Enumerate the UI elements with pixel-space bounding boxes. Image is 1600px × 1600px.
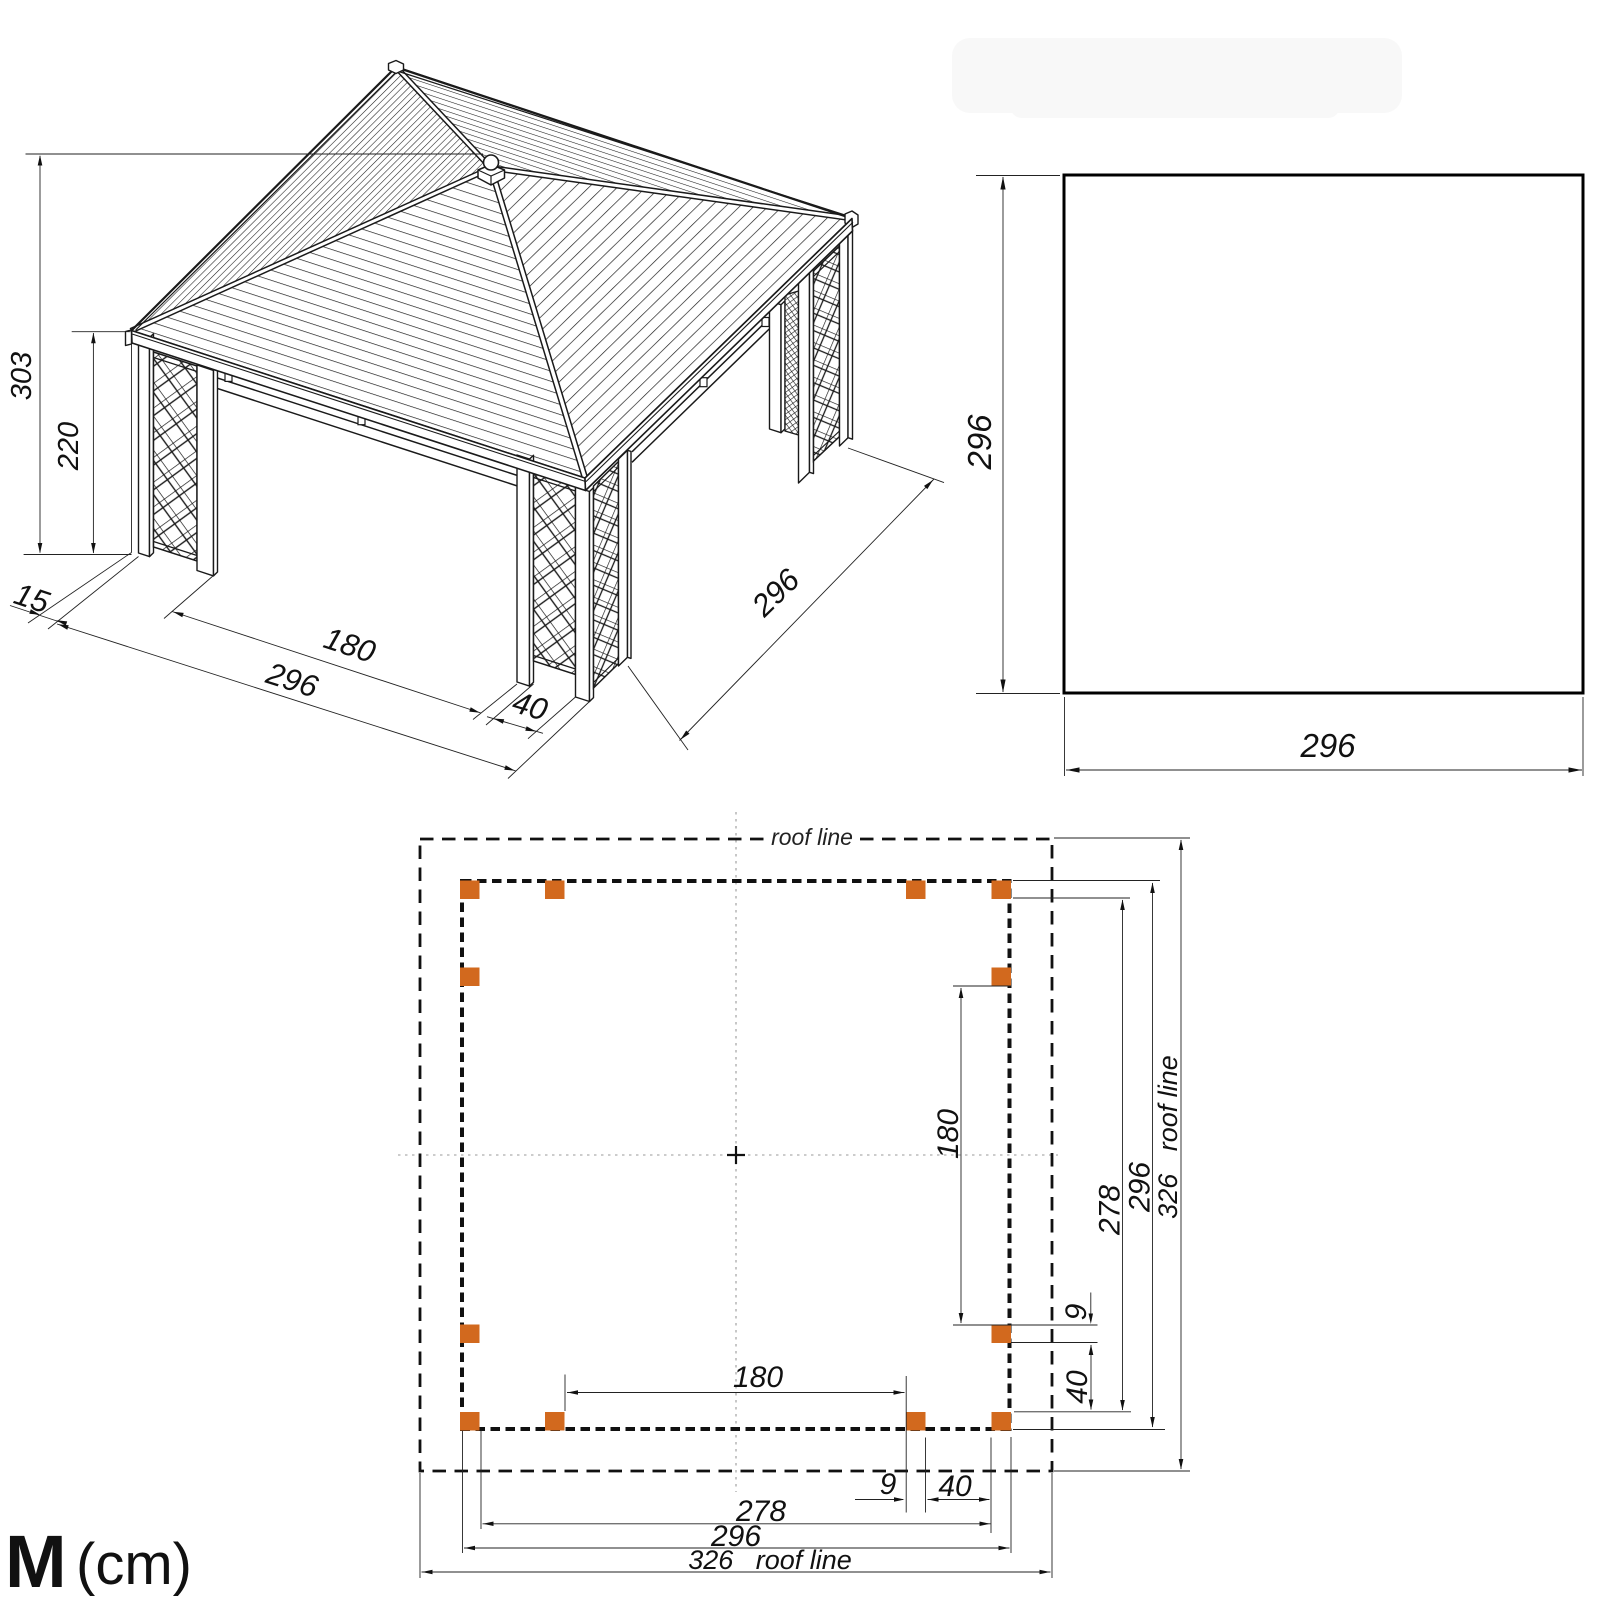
svg-text:326 roof line: 326 roof line (688, 1545, 852, 1575)
svg-text:326 roof line: 326 roof line (1153, 1055, 1183, 1219)
svg-text:9: 9 (880, 1468, 897, 1501)
svg-text:M: M (5, 1520, 67, 1600)
svg-text:220: 220 (53, 422, 85, 471)
svg-text:40: 40 (1061, 1370, 1094, 1404)
svg-text:9: 9 (1060, 1303, 1093, 1320)
svg-text:303: 303 (6, 352, 38, 400)
svg-text:278: 278 (1094, 1185, 1127, 1236)
svg-text:(cm): (cm) (76, 1532, 192, 1597)
svg-text:40: 40 (938, 1470, 972, 1503)
svg-text:180: 180 (932, 1109, 965, 1159)
svg-text:296: 296 (961, 414, 998, 471)
svg-text:296: 296 (1124, 1162, 1157, 1213)
svg-text:296: 296 (1299, 727, 1356, 764)
svg-text:roof line: roof line (771, 824, 853, 850)
svg-text:180: 180 (733, 1361, 783, 1394)
